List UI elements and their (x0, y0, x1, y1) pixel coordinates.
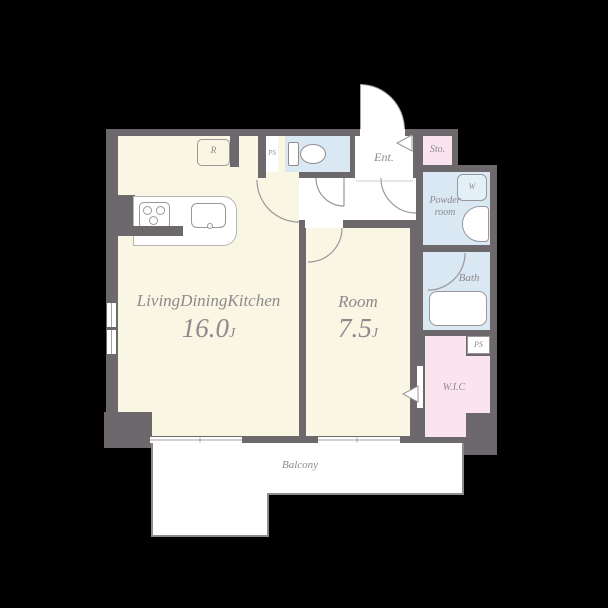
wall-segment (258, 136, 266, 178)
corner-column-left (104, 412, 152, 448)
toilet-icon (300, 144, 326, 164)
balcony-floor (152, 443, 463, 494)
tap-icon (207, 223, 213, 229)
bedroom-window (318, 437, 400, 443)
bathtub-icon (429, 291, 487, 326)
wic-floor-ext (466, 356, 490, 413)
toilet-tank-icon (288, 142, 299, 166)
pipe-space-bottom (467, 336, 490, 354)
bedroom-doorway (305, 220, 343, 228)
ldk-floor (118, 136, 299, 436)
entrance-doorway (360, 129, 405, 136)
kitchen-wall-column (106, 195, 135, 226)
side-window-lower (107, 330, 116, 354)
balcony-floor-ext (152, 494, 268, 537)
pipe-space-top (266, 136, 278, 172)
entrance-door-icon (360, 84, 405, 130)
floor-plan: LivingDiningKitchen 16.0J Room 7.5J Balc… (0, 0, 608, 608)
ldk-window (150, 437, 242, 443)
wic-floor (425, 336, 466, 437)
wic-doorway (417, 366, 423, 408)
sink-icon (191, 203, 226, 228)
stove-icon (139, 202, 170, 229)
refrigerator-icon (197, 139, 230, 166)
corner-column-right (463, 437, 497, 455)
wall-segment (230, 136, 239, 167)
side-window-upper (107, 303, 116, 327)
washing-machine-icon (457, 174, 487, 201)
storage-floor (423, 136, 452, 165)
burner-icon (156, 206, 165, 215)
entrance-floor (355, 136, 413, 180)
kitchen-half-wall (106, 226, 183, 236)
hallway-floor (299, 178, 416, 220)
bedroom-floor (306, 228, 410, 436)
burner-icon (143, 206, 152, 215)
burner-icon (149, 216, 158, 225)
